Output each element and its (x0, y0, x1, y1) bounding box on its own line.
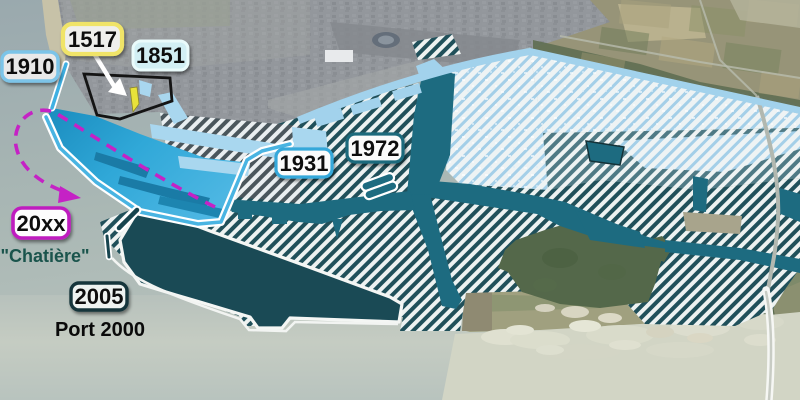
svg-text:1910: 1910 (6, 54, 55, 79)
svg-text:Port 2000: Port 2000 (55, 319, 145, 341)
svg-text:1972: 1972 (351, 136, 400, 161)
svg-text:1851: 1851 (136, 43, 185, 68)
svg-text:20xx: 20xx (17, 211, 67, 236)
svg-text:1931: 1931 (280, 151, 329, 176)
svg-text:"Chatière": "Chatière" (0, 246, 89, 266)
svg-text:1517: 1517 (68, 27, 117, 52)
svg-text:2005: 2005 (75, 284, 124, 309)
